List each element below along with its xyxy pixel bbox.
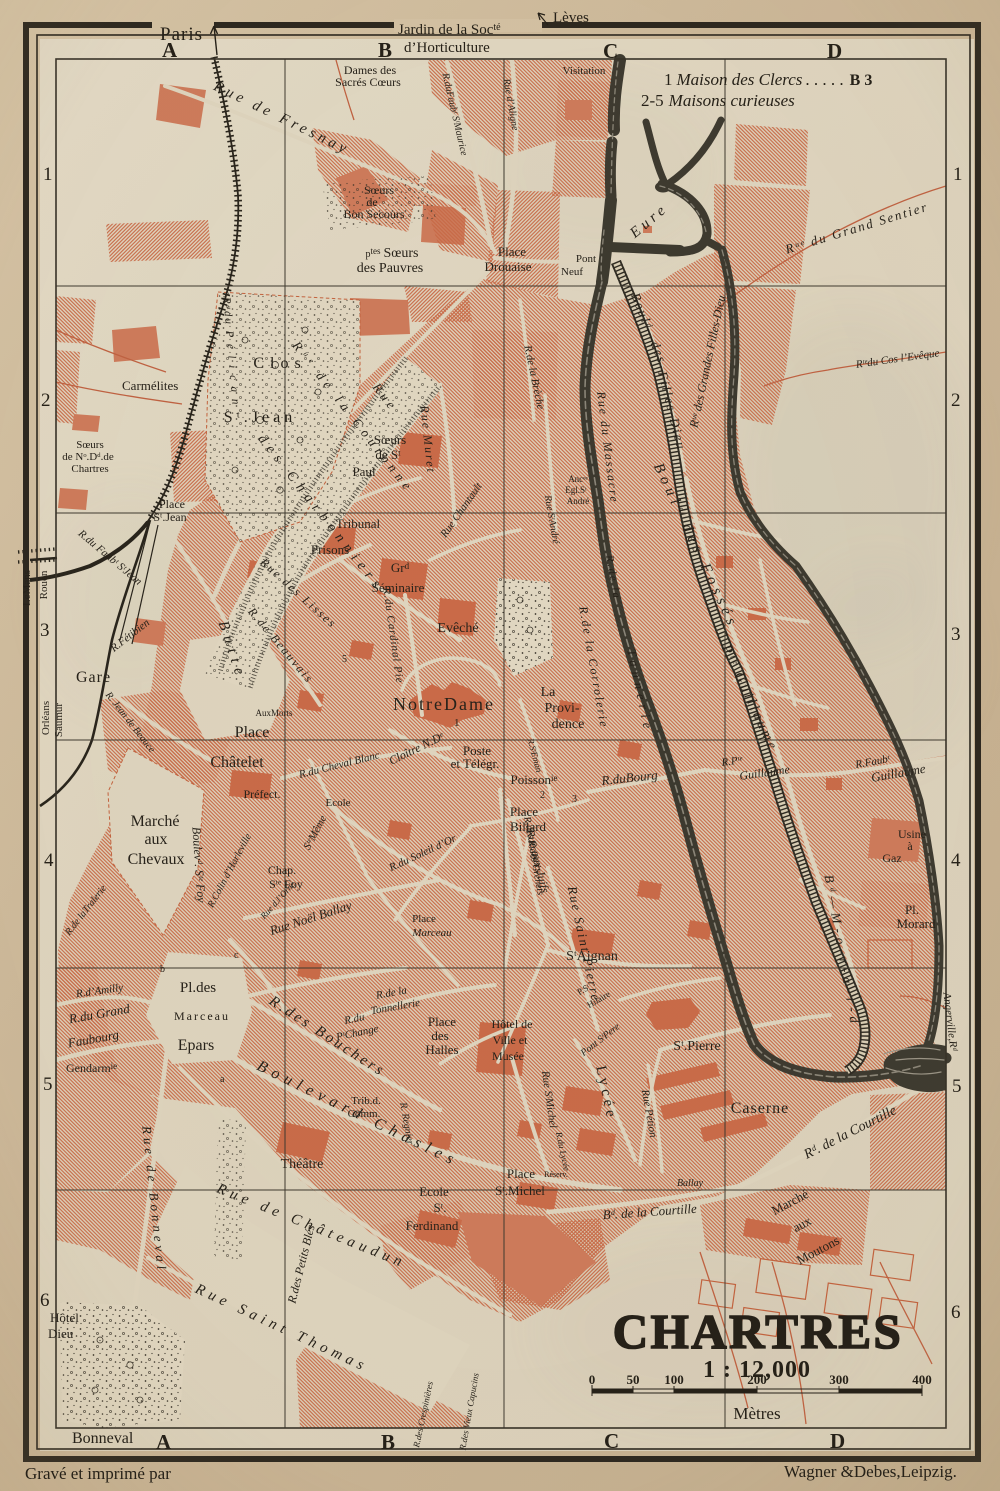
svg-text:Ecole: Ecole [419, 1184, 449, 1199]
svg-text:Place: Place [235, 724, 270, 741]
svg-text:1: 1 [454, 717, 460, 729]
svg-text:3: 3 [951, 624, 961, 645]
svg-text:2: 2 [41, 390, 51, 411]
svg-text:Provi-: Provi- [545, 701, 580, 716]
svg-text:Orléans: Orléans [40, 701, 52, 735]
svg-text:Epars: Epars [178, 1037, 214, 1054]
svg-text:A: A [162, 38, 178, 62]
svg-text:SᵗAignan: SᵗAignan [566, 949, 618, 964]
svg-text:Sacrés Cœurs: Sacrés Cœurs [335, 75, 401, 89]
svg-text:Paul: Paul [352, 464, 376, 479]
svg-text:Mètres: Mètres [733, 1404, 780, 1423]
svg-text:5: 5 [43, 1074, 53, 1095]
svg-text:300: 300 [829, 1372, 849, 1387]
svg-text:3: 3 [40, 620, 50, 641]
svg-text:de Nᵒ.Dᵈ.de: de Nᵒ.Dᵈ.de [62, 451, 114, 463]
svg-text:D: D [827, 39, 842, 63]
svg-text:C: C [604, 1429, 619, 1453]
svg-text:CHARTRES: CHARTRES [613, 1304, 904, 1359]
svg-text:c: c [234, 950, 239, 961]
svg-text:Wagner &Debes,Leipzig.: Wagner &Debes,Leipzig. [784, 1462, 957, 1481]
svg-text:2: 2 [540, 790, 545, 801]
svg-text:Chartres: Chartres [71, 463, 108, 475]
svg-text:NotreDame: NotreDame [393, 694, 495, 714]
svg-text:Hôtel de: Hôtel de [492, 1017, 533, 1031]
svg-text:0: 0 [589, 1372, 596, 1387]
svg-text:d’Horticulture: d’Horticulture [404, 40, 490, 56]
svg-text:Place: Place [428, 1014, 456, 1029]
svg-text:2: 2 [951, 390, 961, 411]
svg-text:aux: aux [144, 831, 167, 848]
svg-text:Ballay: Ballay [677, 1178, 704, 1189]
svg-text:Ecole: Ecole [325, 797, 350, 809]
svg-text:1: 1 [43, 164, 53, 185]
svg-text:Saumur: Saumur [53, 703, 65, 738]
svg-text:B: B [381, 1430, 395, 1454]
svg-text:Marceau: Marceau [411, 927, 452, 939]
svg-text:Morard: Morard [897, 916, 936, 931]
svg-text:Visitation: Visitation [563, 65, 606, 77]
svg-text:Egl.Sᵗ: Egl.Sᵗ [565, 485, 587, 495]
svg-text:Sᵗ.Jean: Sᵗ.Jean [153, 510, 186, 524]
svg-text:Gendarmie: Gendarmie [66, 1061, 117, 1075]
svg-text:Gravé et imprimé par: Gravé et imprimé par [25, 1464, 171, 1483]
svg-text:Hôtel: Hôtel [50, 1310, 79, 1325]
svg-text:Bon Secours: Bon Secours [344, 207, 405, 221]
svg-text:Ville et: Ville et [493, 1033, 529, 1047]
svg-text:Préfect.: Préfect. [244, 787, 281, 801]
svg-text:Pl.des: Pl.des [180, 980, 216, 996]
svg-text:6: 6 [40, 1290, 50, 1311]
svg-text:B: B [378, 38, 392, 62]
svg-text:C: C [603, 39, 618, 63]
svg-text:La: La [541, 685, 557, 700]
svg-text:50: 50 [627, 1372, 640, 1387]
svg-text:6: 6 [951, 1302, 961, 1323]
svg-text:Ferdinand: Ferdinand [406, 1218, 459, 1233]
svg-text:1Maison des Clercs. . . . .B 3: 1Maison des Clercs. . . . .B 3 [664, 70, 872, 89]
svg-text:Place: Place [412, 913, 436, 925]
svg-text:Sᵗ.: Sᵗ. [434, 1200, 447, 1215]
svg-text:b: b [160, 964, 165, 975]
svg-text:et Télégr.: et Télégr. [451, 756, 500, 771]
svg-text:Caserne: Caserne [731, 1100, 790, 1117]
svg-text:Sᵗ.Jean: Sᵗ.Jean [224, 409, 296, 426]
svg-text:100: 100 [664, 1372, 684, 1387]
svg-text:André: André [567, 496, 590, 506]
svg-text:Châtelet: Châtelet [210, 754, 264, 771]
svg-text:Halles: Halles [425, 1042, 458, 1057]
svg-text:Gare: Gare [76, 669, 111, 686]
svg-text:Bonneval: Bonneval [72, 1430, 134, 1447]
svg-text:4: 4 [951, 850, 961, 871]
svg-text:Place: Place [159, 497, 185, 511]
svg-text:Théâtre: Théâtre [281, 1157, 324, 1172]
svg-text:à: à [907, 839, 913, 853]
svg-text:Musée: Musée [492, 1049, 524, 1063]
svg-text:des: des [431, 1028, 448, 1043]
svg-text:Sᵗ.Michel: Sᵗ.Michel [495, 1183, 545, 1198]
svg-text:A: A [156, 1430, 172, 1454]
svg-text:Place: Place [498, 244, 526, 259]
svg-text:Ancᵉᵉ: Ancᵉᵉ [568, 474, 588, 484]
svg-text:4: 4 [44, 850, 54, 871]
svg-text:dence: dence [552, 717, 585, 732]
svg-text:Marceau: Marceau [174, 1009, 230, 1023]
svg-text:Rouen: Rouen [38, 570, 50, 599]
svg-text:400: 400 [912, 1372, 932, 1387]
svg-text:LeMans: LeMans [21, 570, 33, 606]
svg-text:Chevaux: Chevaux [128, 851, 185, 868]
svg-text:Chap.: Chap. [268, 863, 296, 877]
svg-text:1: 1 [953, 164, 963, 185]
svg-text:Pont: Pont [576, 253, 596, 265]
svg-text:5: 5 [342, 654, 347, 665]
svg-text:Pl.: Pl. [905, 902, 919, 917]
svg-text:Carmélites: Carmélites [122, 378, 178, 393]
svg-text:des Pauvres: des Pauvres [357, 261, 424, 276]
svg-text:Lèves: Lèves [553, 10, 589, 26]
svg-text:3: 3 [572, 794, 577, 805]
svg-text:Evêché: Evêché [437, 621, 478, 636]
svg-text:5: 5 [952, 1076, 962, 1097]
svg-text:Place: Place [507, 1166, 535, 1181]
svg-text:Marché: Marché [131, 813, 180, 830]
svg-text:D: D [830, 1429, 845, 1453]
svg-text:Gaz: Gaz [882, 851, 901, 865]
svg-text:Poissonie: Poissonie [511, 772, 558, 787]
svg-text:Dieu: Dieu [48, 1326, 74, 1341]
svg-text:Neuf: Neuf [561, 266, 583, 278]
svg-text:Drouaise: Drouaise [485, 259, 532, 274]
svg-text:AuxMorts: AuxMorts [255, 708, 292, 718]
svg-text:Sᵗ.Pierre: Sᵗ.Pierre [673, 1039, 720, 1054]
svg-text:200: 200 [747, 1372, 767, 1387]
svg-text:Sœurs: Sœurs [76, 439, 104, 451]
svg-text:a: a [220, 1074, 225, 1085]
svg-text:Jardin de la Socté: Jardin de la Socté [398, 22, 501, 38]
